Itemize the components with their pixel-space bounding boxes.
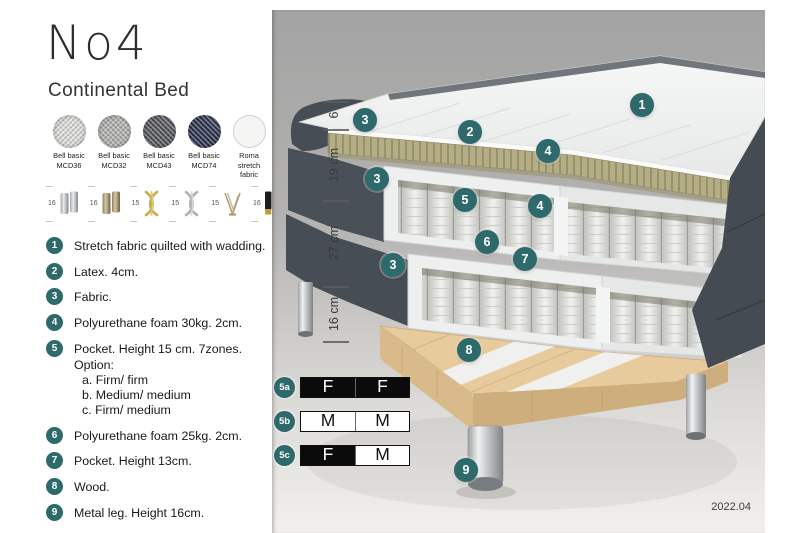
product-subtitle: Continental Bed [48, 80, 189, 102]
feature-item: 9Metal leg. Height 16cm. [46, 504, 276, 521]
fabric-swatch-label: Bell basicMCD32 [93, 151, 135, 170]
fabric-swatch: Bell basicMCD43 [138, 115, 180, 180]
leg-option: 16 [46, 186, 83, 222]
fabric-swatch-label: Romastretch fabric [228, 151, 270, 180]
callout-8: 8 [457, 338, 481, 362]
product-title: No4 [46, 16, 149, 71]
firmness-row-5b: 5bMM [274, 410, 410, 432]
feature-description: Metal leg. Height 16cm. [74, 505, 204, 521]
firmness-row-5a: 5aFF [274, 376, 410, 398]
callout-3: 3 [381, 253, 405, 277]
fabric-name: Bell basic [48, 151, 90, 161]
callout-6: 6 [475, 230, 499, 254]
fabric-swatch-label: Bell basicMCD74 [183, 151, 225, 170]
firmness-cell: M [301, 412, 355, 431]
spec-sheet: No4 Continental Bed Bell basicMCD36Bell … [0, 0, 800, 533]
fabric-swatch: Romastretch fabric [228, 115, 270, 180]
dimension-tick [323, 286, 349, 288]
leg-option-list: 161615151516 [46, 186, 285, 222]
feature-number-badge: 9 [46, 504, 63, 521]
fabric-swatch-label: Bell basicMCD43 [138, 151, 180, 170]
feature-item: 8Wood. [46, 478, 276, 495]
fabric-code: MCD36 [48, 161, 90, 171]
firmness-cells: MM [300, 411, 410, 432]
feature-item: 1Stretch fabric quilted with wadding. [46, 237, 276, 254]
leg-height-label: 15 [211, 200, 219, 207]
firmness-id-badge: 5a [274, 377, 295, 398]
callout-3: 3 [353, 108, 377, 132]
fabric-code: MCD43 [138, 161, 180, 171]
cylinder-bronze-leg-icon [100, 190, 123, 217]
feature-option: c. Firm/ medium [82, 403, 276, 418]
feature-number-badge: 6 [46, 427, 63, 444]
dimension-tick [323, 101, 349, 103]
fabric-code: MCD32 [93, 161, 135, 171]
callout-9: 9 [454, 458, 478, 482]
feature-text: Pocket. Height 13cm. [74, 452, 192, 469]
fabric-swatch-label: Bell basicMCD36 [48, 151, 90, 170]
feature-number-badge: 5 [46, 340, 63, 357]
feature-option: b. Medium/ medium [82, 388, 276, 403]
dimension-label: 6 [327, 112, 341, 119]
firmness-cell: F [355, 378, 409, 397]
dimension-tick [323, 129, 349, 131]
feature-description: Stretch fabric quilted with wadding. [74, 238, 265, 254]
feature-text: Fabric. [74, 288, 112, 305]
firmness-cell: M [355, 446, 409, 465]
callout-4: 4 [536, 139, 560, 163]
fabric-swatch: Bell basicMCD32 [93, 115, 135, 180]
feature-text: Wood. [74, 478, 110, 495]
fabric-swatch-list: Bell basicMCD36Bell basicMCD32Bell basic… [48, 115, 270, 180]
feature-number-badge: 8 [46, 478, 63, 495]
feature-description: Wood. [74, 479, 110, 495]
callout-7: 7 [513, 247, 537, 271]
feature-list: 1Stretch fabric quilted with wadding.2La… [46, 237, 276, 529]
feature-description: Pocket. Height 13cm. [74, 453, 192, 469]
feature-item: 4Polyurethane foam 30kg. 2cm. [46, 314, 276, 331]
callout-4: 4 [528, 194, 552, 218]
fabric-swatch-circle [143, 115, 176, 148]
feature-text: Pocket. Height 15 cm. 7zones. Option:a. … [74, 340, 276, 419]
feature-text: Stretch fabric quilted with wadding. [74, 237, 265, 254]
firmness-cells: FF [300, 377, 410, 398]
firmness-cell: F [301, 446, 355, 465]
leg-height-label: 16 [90, 200, 98, 207]
dimension-label: 19 cm [327, 147, 341, 181]
fabric-swatch-circle [233, 115, 266, 148]
feature-text: Latex. 4cm. [74, 263, 138, 280]
dimension-tick [323, 341, 349, 343]
feature-description: Latex. 4cm. [74, 264, 138, 280]
firmness-id-badge: 5c [274, 445, 295, 466]
feature-item: 7Pocket. Height 13cm. [46, 452, 276, 469]
fabric-swatch-circle [53, 115, 86, 148]
leg-height-label: 15 [132, 200, 140, 207]
fabric-code: MCD74 [183, 161, 225, 171]
twist-gold-leg-icon [141, 190, 162, 217]
dimension-tick [323, 200, 349, 202]
leg-height-label: 16 [253, 200, 261, 207]
leg-height-label: 15 [171, 200, 179, 207]
firmness-row-5c: 5cFM [274, 444, 410, 466]
feature-item: 3Fabric. [46, 288, 276, 305]
feature-item: 6Polyurethane foam 25kg. 2cm. [46, 427, 276, 444]
dimension-label: 16 cm [327, 296, 341, 330]
fabric-swatch: Bell basicMCD36 [48, 115, 90, 180]
feature-number-badge: 7 [46, 452, 63, 469]
feature-item: 5Pocket. Height 15 cm. 7zones. Option:a.… [46, 340, 276, 419]
version-label: 2022.04 [711, 501, 751, 513]
feature-item: 2Latex. 4cm. [46, 263, 276, 280]
feature-description: Polyurethane foam 30kg. 2cm. [74, 315, 242, 331]
fabric-name: Bell basic [183, 151, 225, 161]
feature-text: Polyurethane foam 30kg. 2cm. [74, 314, 242, 331]
feature-text: Polyurethane foam 25kg. 2cm. [74, 427, 242, 444]
dimension-label: 27 cm [327, 226, 341, 260]
leg-option: 15 [209, 186, 246, 222]
callout-2: 2 [458, 120, 482, 144]
feature-number-badge: 2 [46, 263, 63, 280]
twist-silver-leg-icon [181, 190, 202, 217]
leg-option: 15 [130, 186, 165, 222]
feature-number-badge: 1 [46, 237, 63, 254]
firmness-cell: M [355, 412, 409, 431]
feature-description: Pocket. Height 15 cm. 7zones. Option: [74, 341, 276, 373]
fabric-swatch-circle [98, 115, 131, 148]
fabric-name: Bell basic [93, 151, 135, 161]
firmness-id-badge: 5b [274, 411, 295, 432]
feature-description: Fabric. [74, 289, 112, 305]
firmness-cells: FM [300, 445, 410, 466]
fabric-name: Bell basic [138, 151, 180, 161]
feature-number-badge: 3 [46, 288, 63, 305]
feature-text: Metal leg. Height 16cm. [74, 504, 204, 521]
leg-height-label: 16 [48, 200, 56, 207]
leg-option: 15 [169, 186, 204, 222]
leg-option: 16 [88, 186, 125, 222]
hairpin-leg-icon [221, 190, 244, 217]
callout-1: 1 [630, 93, 654, 117]
callout-3: 3 [365, 167, 389, 191]
firmness-options: 5aFF5bMM5cFM [274, 376, 410, 478]
fabric-swatch: Bell basicMCD74 [183, 115, 225, 180]
cylinder-silver-leg-icon [58, 190, 81, 217]
feature-description: Polyurethane foam 25kg. 2cm. [74, 428, 242, 444]
bed-diagram-panel: 619 cm27 cm16 cm 123435467389 5aFF5bMM5c… [272, 10, 765, 533]
callout-5: 5 [453, 188, 477, 212]
fabric-code: stretch fabric [228, 161, 270, 180]
fabric-name: Roma [228, 151, 270, 161]
firmness-cell: F [301, 378, 355, 397]
feature-number-badge: 4 [46, 314, 63, 331]
fabric-swatch-circle [188, 115, 221, 148]
feature-option: a. Firm/ firm [82, 373, 276, 388]
